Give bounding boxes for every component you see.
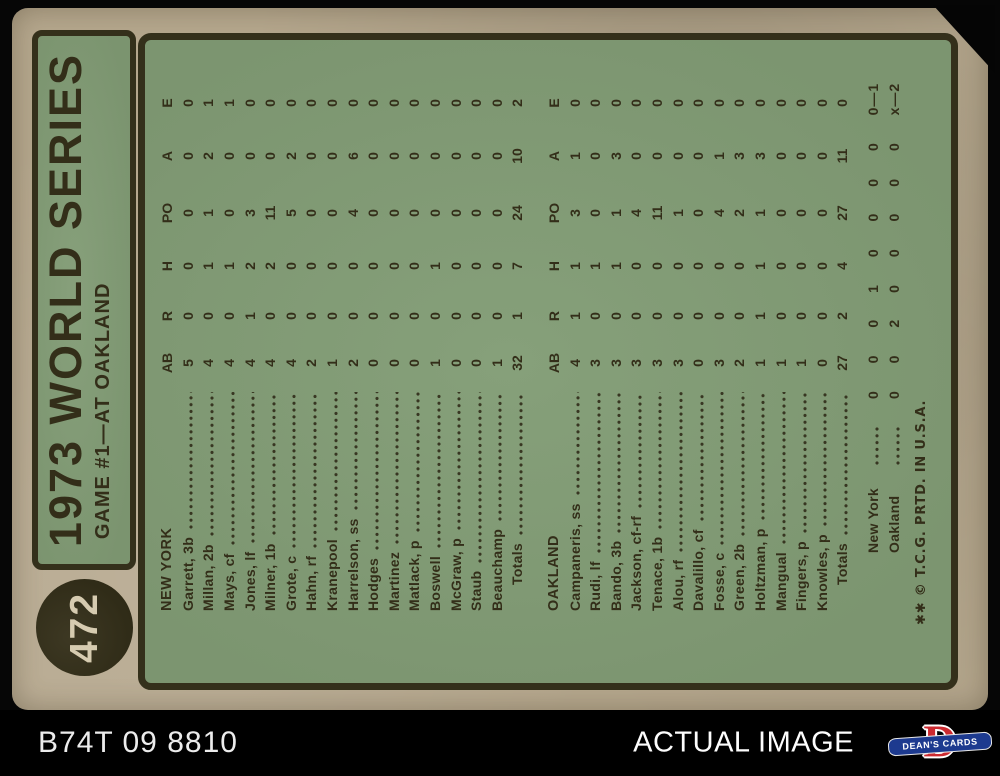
stat-cell: 24 [509,186,525,240]
stat-cell: 3 [670,340,686,386]
inning-group: 0 0 0 [865,107,881,187]
stat-cell: 0 [448,126,464,186]
stat-cell: 1 [427,240,443,292]
stat-cell: 1 [221,240,237,292]
table-row: Matlack, p000000 [404,40,425,683]
table-row: Beauchamp100000 [487,40,508,683]
caption-bar: B74T 09 8810 ACTUAL IMAGE D DEAN'S CARDS [0,710,1000,776]
stat-cell: 0 [303,186,319,240]
stat-cell: 0 [448,186,464,240]
card-number: 472 [63,592,107,663]
column-header: R [546,292,562,340]
stat-cell: 1 [752,292,768,340]
stat-cell: 11 [262,186,278,240]
stat-cell: 27 [834,186,850,240]
stat-cell: 2 [262,240,278,292]
stat-cell: 0 [386,126,402,186]
stat-cell: 0 [773,240,789,292]
stat-cell: 0 [587,80,603,126]
logo-ribbon-label: DEAN'S CARDS [887,731,992,756]
line-score-row: Oakland0 0 20 0 00 0 x—2 [884,40,905,683]
dot-leader [741,392,745,536]
stat-cell: 27 [834,340,850,386]
player-name: Matlack, p [406,540,422,611]
dot-leader [576,392,580,495]
stat-cell: 2 [345,340,361,386]
trading-card-rotated: 472 1973 WORLD SERIES GAME #1—AT OAKLAND… [12,8,988,710]
stat-cell: 0 [406,240,422,292]
dot-leader [761,392,765,520]
stat-cell: 1 [242,292,258,340]
stat-cell: 0 [221,292,237,340]
stat-cell: 0 [365,292,381,340]
stat-cell: 0 [649,240,665,292]
stat-cell: 0 [628,126,644,186]
stat-cell: 0 [406,292,422,340]
stat-cell: 0 [670,126,686,186]
stat-cell: 4 [567,340,583,386]
stat-cell: 1 [427,340,443,386]
player-name: Millan, 2b [200,544,216,611]
table-row: Totals321724102 [507,40,528,683]
stat-cell: 0 [628,80,644,126]
column-header: H [159,240,175,292]
stat-cell: 5 [180,340,196,386]
inning-group: 0 0 2 [886,319,902,399]
table-row: Harrelson, ss200460 [342,40,363,683]
stat-cell: 0 [567,80,583,126]
stat-cell: 0 [448,240,464,292]
stat-cell: 0 [386,186,402,240]
stat-cell: 1 [509,292,525,340]
stat-cell: 1 [752,340,768,386]
stat-cell: 0 [427,292,443,340]
dot-leader [844,392,848,535]
stat-cell: 7 [509,240,525,292]
stat-cell: 0 [283,80,299,126]
stat-cell: 0 [489,126,505,186]
stat-cell: 0 [793,80,809,126]
stat-cell: 0 [690,240,706,292]
stat-cell: 2 [834,292,850,340]
dot-leader [875,425,879,465]
stat-cell: 0 [180,240,196,292]
player-name: Totals [509,543,525,585]
stat-cell: 0 [406,126,422,186]
stat-cell: 1 [324,340,340,386]
line-score-result: —1 [865,83,881,107]
player-name: Grote, c [283,556,299,611]
stat-cell: 3 [242,186,258,240]
stat-cell: 2 [731,340,747,386]
stat-cell: 1 [567,292,583,340]
dot-leader [519,392,523,535]
table-row: Jackson, cf-rf300400 [626,40,647,683]
stat-cell: 0 [690,292,706,340]
stat-cell: 0 [752,80,768,126]
stat-cell: 1 [489,340,505,386]
column-header: AB [546,340,562,386]
dot-leader [782,392,786,544]
stat-cell: 0 [365,80,381,126]
table-row: Staub000000 [466,40,487,683]
player-name: Garrett, 3b [180,537,196,611]
column-header: R [159,292,175,340]
header-row: OAKLANDABRHPOAE [544,40,565,683]
stat-cell: 0 [303,240,319,292]
dot-leader [478,392,482,563]
stat-cell: 3 [608,126,624,186]
dot-leader [272,392,276,535]
inning-group: 0 0 x [886,107,902,187]
stat-cell: 11 [649,186,665,240]
line-score-team: New York [865,469,881,553]
player-name: McGraw, p [448,538,464,611]
stat-cell: 0 [649,292,665,340]
stat-cell: 0 [324,292,340,340]
stat-cell: 0 [180,126,196,186]
stat-cell: 1 [752,186,768,240]
player-name: Fosse, c [711,553,727,611]
player-name: Mangual [773,552,789,611]
dot-leader [251,392,255,544]
stat-cell: 0 [406,80,422,126]
stat-cell: 0 [468,80,484,126]
player-name: Beauchamp [489,529,505,611]
stat-cell: 0 [180,292,196,340]
stat-cell: 0 [386,340,402,386]
table-row: Knowles, p000000 [811,40,832,683]
table-row: Hahn, rf200000 [301,40,322,683]
column-header: A [159,126,175,186]
player-name: Kranepool [324,539,340,611]
card-subtitle: GAME #1—AT OAKLAND [92,258,115,564]
stat-cell: 5 [283,186,299,240]
stat-cell: 0 [793,186,809,240]
column-header: E [159,80,175,126]
stat-cell: 0 [406,186,422,240]
table-row: Garrett, 3b500000 [178,40,199,683]
header-row: NEW YORKABRHPOAE [157,40,178,683]
table-row: McGraw, p000000 [445,40,466,683]
table-row: Millan, 2b401121 [198,40,219,683]
player-name: Alou, rf [670,560,686,611]
line-score-result: —2 [886,83,902,107]
stat-cell: 0 [670,240,686,292]
card-title: 1973 WORLD SERIES [41,36,91,564]
stat-cell: 0 [221,186,237,240]
stat-cell: 1 [608,240,624,292]
box-score-new-york: NEW YORKABRHPOAEGarrett, 3b500000Millan,… [157,40,528,683]
stat-cell: 6 [345,126,361,186]
stat-cell: 0 [814,186,830,240]
stat-cell: 4 [628,186,644,240]
table-row: Campaneris, ss411310 [564,40,585,683]
stat-cell: 0 [468,126,484,186]
stat-cell: 3 [587,340,603,386]
stat-cell: 0 [773,126,789,186]
stat-cell: 1 [587,240,603,292]
player-name: Jones, lf [242,552,258,612]
dot-leader [658,392,662,529]
stat-cell: 0 [814,340,830,386]
stat-cell: 0 [731,80,747,126]
stat-cell: 0 [711,240,727,292]
stat-cell: 0 [731,292,747,340]
inning-group: 0 0 0 [886,213,902,293]
stat-cell: 4 [262,340,278,386]
player-name: Martinez [386,552,402,611]
table-row: Martinez000000 [384,40,405,683]
player-name: Mays, cf [221,553,237,611]
stat-cell: 0 [345,240,361,292]
stat-cell: 0 [628,240,644,292]
stat-cell: 0 [587,292,603,340]
box-score-panel: NEW YORKABRHPOAEGarrett, 3b500000Millan,… [138,33,958,690]
stat-cell: 0 [365,340,381,386]
stat-cell: 1 [221,80,237,126]
table-row: Fosse, c300410 [708,40,729,683]
stat-cell: 1 [567,126,583,186]
column-header: PO [159,186,175,240]
inning-group: 1 0 0 [865,213,881,293]
stat-cell: 3 [628,340,644,386]
stat-cell: 0 [814,126,830,186]
stat-cell: 0 [793,292,809,340]
title-box: 1973 WORLD SERIES GAME #1—AT OAKLAND [32,30,136,570]
stat-cell: 0 [834,80,850,126]
stat-cell: 0 [587,126,603,186]
stat-cell: 3 [567,186,583,240]
stat-cell: 0 [814,240,830,292]
stat-cell: 2 [509,80,525,126]
table-row: Green, 2b200230 [729,40,750,683]
column-header: AB [159,340,175,386]
player-name: Green, 2b [731,544,747,611]
player-name: Fingers, p [793,541,809,611]
stat-cell: 0 [324,240,340,292]
table-row: Holtzman, p111130 [750,40,771,683]
table-row: Milner, 1b4021100 [260,40,281,683]
player-name: Campaneris, ss [567,503,583,611]
stat-cell: 1 [567,240,583,292]
lot-code: B74T 09 8810 [38,726,238,760]
dot-leader [896,425,900,465]
stat-cell: 2 [731,186,747,240]
stat-cell: 0 [386,80,402,126]
team-name: OAKLAND [546,535,562,611]
stat-cell: 0 [365,186,381,240]
stat-cell: 0 [587,186,603,240]
dot-leader [395,392,399,544]
stat-cell: 3 [752,126,768,186]
card-number-badge: 472 [36,579,133,676]
column-header: E [546,80,562,126]
stat-cell: 0 [670,80,686,126]
column-header: H [546,240,562,292]
stat-cell: 2 [242,240,258,292]
dot-leader [437,392,441,548]
stat-cell: 0 [324,126,340,186]
dot-leader [803,392,807,533]
stat-cell: 0 [406,340,422,386]
stat-cell: 0 [365,126,381,186]
dot-leader [700,392,704,521]
stat-cell: 0 [608,292,624,340]
stat-cell: 4 [242,340,258,386]
stat-cell: 0 [731,240,747,292]
dot-leader [292,392,296,548]
card-back: 472 1973 WORLD SERIES GAME #1—AT OAKLAND… [12,8,988,710]
line-score: New York0 0 01 0 00 0 0—1Oakland0 0 20 0… [863,40,905,683]
stat-cell: 0 [690,80,706,126]
stat-cell: 0 [200,292,216,340]
stat-cell: 1 [200,80,216,126]
stat-cell: 0 [690,340,706,386]
stat-cell: 0 [180,186,196,240]
stat-cell: 0 [711,80,727,126]
stat-cell: 1 [711,126,727,186]
stat-cell: 0 [793,126,809,186]
stat-cell: 3 [649,340,665,386]
dot-leader [189,392,193,529]
stat-cell: 0 [773,186,789,240]
stat-cell: 3 [731,126,747,186]
player-name: Hodges [365,558,381,611]
player-name: Rudi, lf [587,561,603,611]
dot-leader [679,392,683,552]
stat-cell: 0 [489,292,505,340]
stat-cell: 1 [200,186,216,240]
stat-cell: 0 [345,292,361,340]
table-row: Rudi, lf301000 [585,40,606,683]
dot-leader [334,392,338,531]
dot-leader [416,392,420,532]
dot-leader [354,392,358,510]
player-name: Totals [834,543,850,585]
line-score-team: Oakland [886,469,902,553]
table-row: Kranepool100000 [322,40,343,683]
stat-cell: 4 [200,340,216,386]
table-row: Tenace, 1b3001100 [647,40,668,683]
dot-leader [498,392,502,521]
stat-cell: 4 [711,186,727,240]
stat-cell: 0 [670,292,686,340]
team-name: NEW YORK [159,528,175,612]
table-row: Davalillo, cf000000 [688,40,709,683]
stat-cell: 2 [283,126,299,186]
stat-cell: 1 [773,340,789,386]
stat-cell: 0 [690,186,706,240]
photo-stage: 472 1973 WORLD SERIES GAME #1—AT OAKLAND… [0,0,1000,776]
stat-cell: 32 [509,340,525,386]
dot-leader [313,392,317,548]
player-name: Tenace, 1b [649,537,665,611]
player-name: Staub [468,571,484,611]
dot-leader [597,392,601,553]
stat-cell: 0 [468,292,484,340]
player-name: Jackson, cf-rf [628,516,644,611]
player-name: Holtzman, p [752,528,768,611]
stat-cell: 0 [324,186,340,240]
stat-cell: 0 [262,80,278,126]
stat-cell: 0 [242,126,258,186]
stat-cell: 1 [793,340,809,386]
stat-cell: 11 [834,126,850,186]
player-name: Milner, 1b [262,543,278,611]
stat-cell: 0 [283,240,299,292]
stat-cell: 0 [608,80,624,126]
dot-leader [375,392,379,550]
stat-cell: 0 [303,126,319,186]
table-row: Grote, c400520 [281,40,302,683]
stat-cell: 0 [303,292,319,340]
table-row: Mays, cf401001 [219,40,240,683]
stat-cell: 0 [180,80,196,126]
stat-cell: 0 [814,292,830,340]
stat-cell: 0 [773,292,789,340]
stat-cell: 0 [324,80,340,126]
stat-cell: 0 [814,80,830,126]
stat-cell: 0 [221,126,237,186]
stat-cell: 4 [283,340,299,386]
stat-cell: 0 [386,292,402,340]
stat-cell: 0 [365,240,381,292]
stat-cell: 0 [649,80,665,126]
stat-cell: 10 [509,126,525,186]
player-name: Davalillo, cf [690,529,706,611]
stat-cell: 0 [468,186,484,240]
table-row: Jones, lf412300 [239,40,260,683]
dot-leader [638,392,642,508]
table-row: Alou, rf300100 [667,40,688,683]
stat-cell: 0 [690,126,706,186]
stat-cell: 2 [200,126,216,186]
box-score-oakland: OAKLANDABRHPOAECampaneris, ss411310Rudi,… [544,40,853,683]
stat-cell: 1 [670,186,686,240]
column-header: A [546,126,562,186]
stat-cell: 0 [242,80,258,126]
stat-cell: 0 [427,186,443,240]
table-row: Hodges000000 [363,40,384,683]
stat-cell: 0 [489,80,505,126]
player-name: Bando, 3b [608,541,624,611]
stat-cell: 0 [448,340,464,386]
stat-cell: 0 [468,340,484,386]
stat-cell: 0 [489,186,505,240]
stat-cell: 4 [221,340,237,386]
player-name: Harrelson, ss [345,518,361,611]
stat-cell: 4 [834,240,850,292]
stat-cell: 1 [608,186,624,240]
stat-cell: 3 [608,340,624,386]
stat-cell: 0 [649,126,665,186]
table-row: Boswell101000 [425,40,446,683]
column-header: PO [546,186,562,240]
stat-cell: 0 [262,292,278,340]
stat-cell: 0 [427,80,443,126]
dot-leader [720,392,724,545]
table-row: Bando, 3b301130 [605,40,626,683]
stat-cell: 4 [345,186,361,240]
stat-cell: 0 [448,292,464,340]
table-row: Fingers, p100000 [791,40,812,683]
copyright-line: ✱✱ © T.C.G. PRTD. IN U.S.A. [914,40,929,625]
player-name: Boswell [427,556,443,611]
stat-cell: 0 [303,80,319,126]
stat-cell: 0 [345,80,361,126]
stat-cell: 0 [283,292,299,340]
